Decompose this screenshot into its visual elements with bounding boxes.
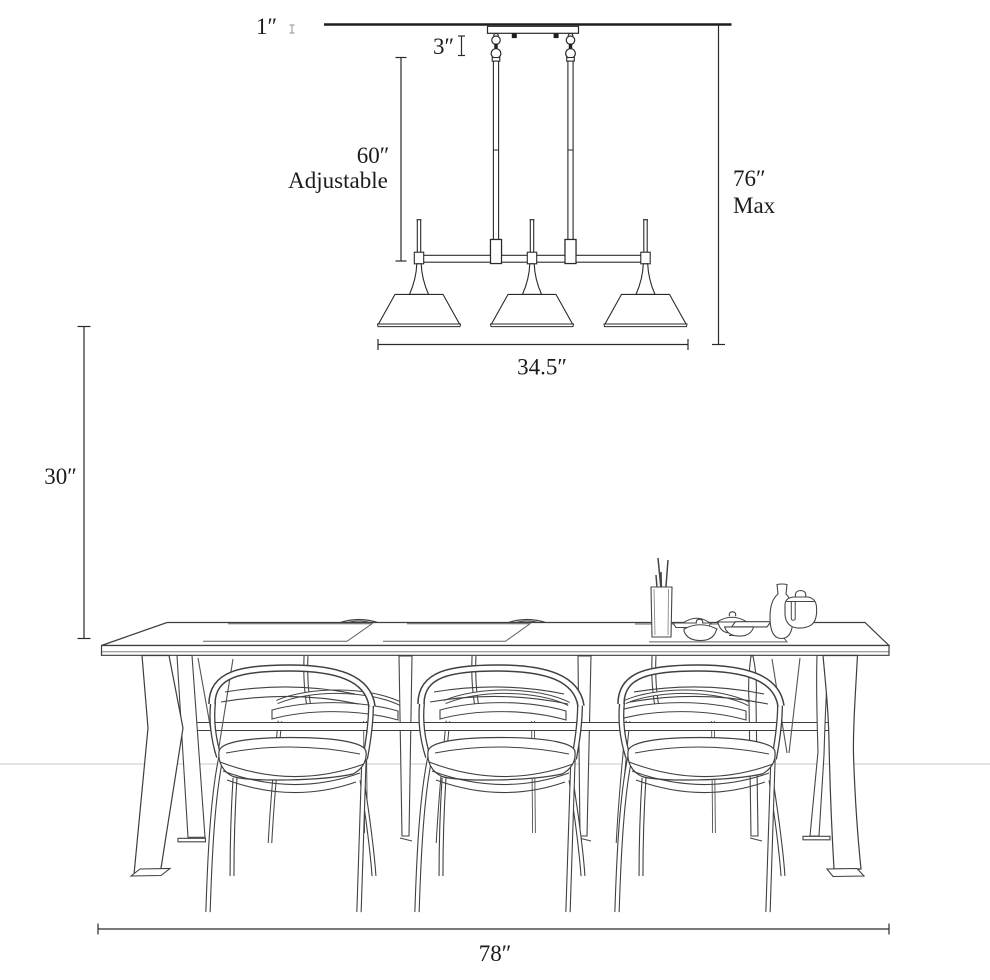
svg-text:Max: Max: [733, 193, 776, 218]
svg-text:30″: 30″: [44, 464, 77, 489]
svg-text:Adjustable: Adjustable: [288, 168, 388, 193]
svg-text:3″: 3″: [433, 34, 454, 59]
svg-text:78″: 78″: [479, 941, 512, 966]
svg-text:76″: 76″: [733, 166, 766, 191]
svg-text:1″: 1″: [256, 14, 277, 39]
svg-text:60″: 60″: [357, 143, 390, 168]
svg-text:34.5″: 34.5″: [517, 355, 567, 380]
